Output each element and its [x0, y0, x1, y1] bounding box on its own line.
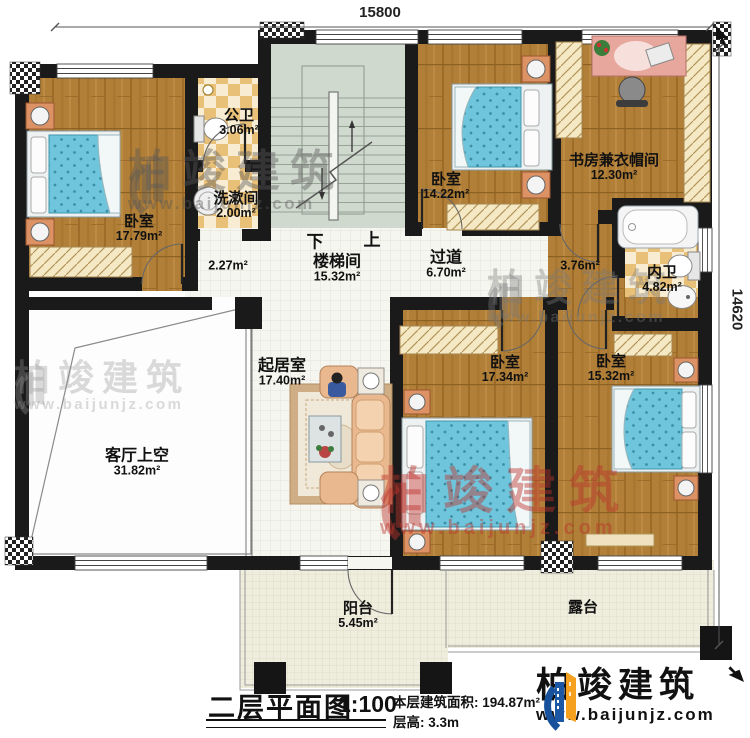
plan-scale: 1:100: [338, 691, 397, 718]
label-washroom: 洗漱间 2.00m²: [213, 191, 258, 221]
bench-se: [586, 534, 654, 546]
plant-icon: [594, 40, 610, 56]
label-void: 客厅上空 31.82m²: [105, 448, 169, 479]
title-underline: [206, 719, 386, 728]
wardrobe-study-left: [556, 42, 582, 138]
label-inner-bath: 内卫 4.82m²: [642, 265, 682, 295]
label-bedroom-se: 卧室 15.32m²: [588, 354, 635, 384]
label-living-room: 起居室 17.40m²: [258, 358, 306, 389]
floor-area-note: 本层建筑面积: 194.87m²: [393, 691, 540, 711]
dimension-right: 14620: [728, 289, 745, 331]
label-hall-area: 2.27m²: [208, 259, 248, 273]
brand-logo-icon: [536, 668, 588, 732]
label-public-bath: 公卫 3.06m²: [219, 108, 259, 138]
cursor-arrow-icons: [716, 26, 744, 686]
armchair-bottom: [320, 472, 358, 504]
dimension-top: 15800: [359, 4, 401, 21]
balcony-door-opening: [348, 557, 392, 569]
label-bedroom-ne: 卧室 14.22m²: [423, 172, 470, 202]
wardrobe-nw: [30, 247, 132, 277]
wardrobe-study-right: [684, 44, 710, 202]
closet-s: [400, 326, 498, 354]
label-bedroom-nw: 卧室 17.79m²: [116, 214, 163, 244]
stair-down-label: 下: [307, 228, 324, 253]
label-corridor-area: 3.76m²: [560, 259, 600, 273]
floor-plan-canvas: 卧室 17.79m² 公卫 3.06m² 洗漱间 2.00m² 楼梯间 15.3…: [0, 0, 750, 738]
label-bedroom-s: 卧室 17.34m²: [482, 355, 529, 385]
label-study: 书房兼衣帽间 12.30m²: [569, 153, 659, 183]
label-terrace: 露台: [568, 600, 598, 616]
person-figure: [328, 382, 346, 397]
office-chair: [619, 77, 645, 103]
company-logo: 柏竣建筑 www.baijunjz.com: [536, 668, 715, 725]
label-balcony: 阳台 5.45m²: [338, 601, 378, 631]
label-stairwell: 楼梯间 15.32m²: [313, 254, 361, 285]
label-corridor: 过道 6.70m²: [426, 250, 466, 281]
stair-up-label: 上: [364, 226, 381, 251]
floor-height-note: 层高: 3.3m: [393, 711, 459, 731]
